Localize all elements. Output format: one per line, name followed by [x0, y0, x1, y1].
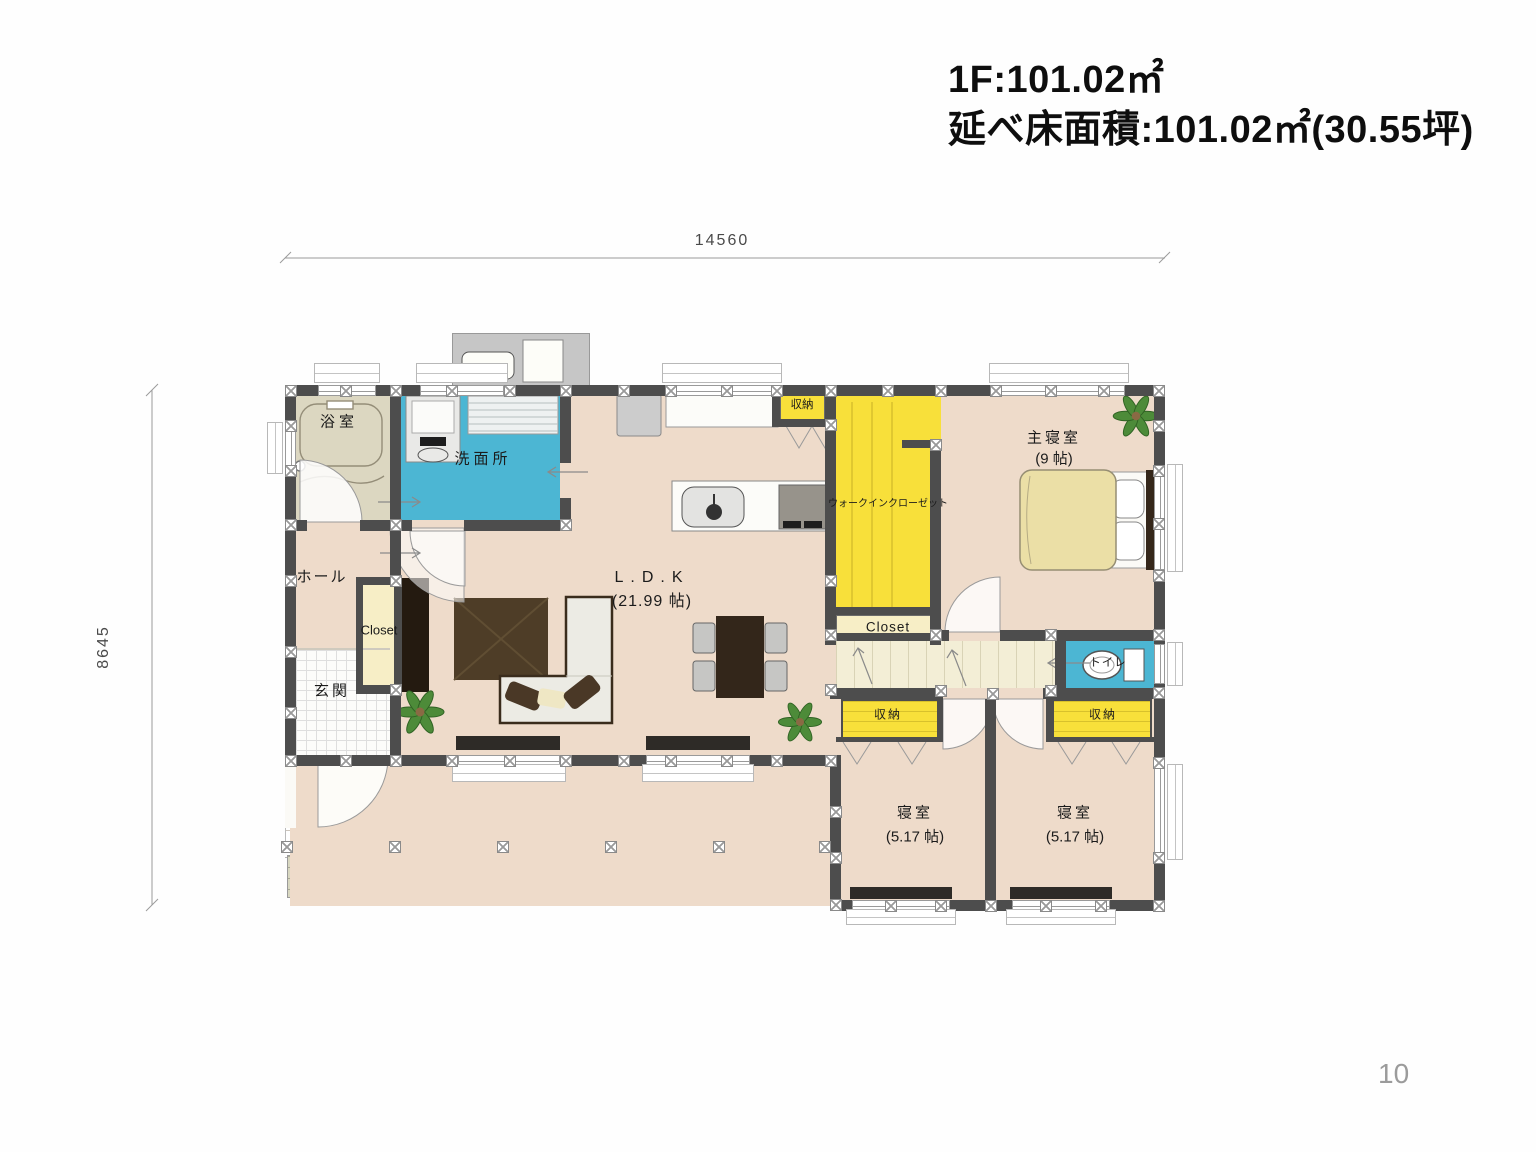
post-mark — [1040, 900, 1052, 912]
post-mark — [990, 385, 1002, 397]
post-mark — [340, 755, 352, 767]
post-mark — [1153, 757, 1165, 769]
post-mark — [390, 755, 402, 767]
window-lintel — [646, 736, 750, 750]
pillow — [1112, 522, 1144, 560]
post-mark — [497, 841, 509, 853]
wall-segment — [1043, 688, 1154, 699]
post-mark — [446, 755, 458, 767]
plant — [396, 689, 444, 736]
post-mark — [830, 852, 842, 864]
post-mark — [390, 575, 402, 587]
kitchen-storage-label: 収納 — [791, 396, 814, 412]
post-mark — [1098, 385, 1110, 397]
post-mark — [1045, 685, 1057, 697]
window-sill — [1167, 642, 1183, 686]
bedroom2-size: (5.17 帖) — [1046, 826, 1104, 847]
post-mark — [825, 385, 837, 397]
post-mark — [930, 439, 942, 451]
post-mark — [1153, 852, 1165, 864]
bedroom1-closet-fold-door — [843, 742, 926, 764]
bedroom2-door-arc — [993, 699, 1043, 749]
window-sill — [1167, 464, 1183, 572]
post-mark — [665, 755, 677, 767]
window-sill — [1167, 764, 1183, 860]
bedroom2-storage-label: 収納 — [1089, 706, 1117, 723]
window-sill — [267, 422, 283, 474]
hall-label: ホール — [296, 566, 347, 587]
post-mark — [605, 841, 617, 853]
post-mark — [285, 755, 297, 767]
wall-segment — [937, 699, 943, 742]
window — [1154, 766, 1165, 858]
post-mark — [935, 900, 947, 912]
post-mark — [446, 385, 458, 397]
post-mark — [985, 900, 997, 912]
wall-segment — [1046, 699, 1052, 742]
wall-segment — [360, 520, 412, 531]
washroom-shelf — [468, 396, 558, 434]
dining-chair — [765, 661, 787, 691]
post-mark — [285, 575, 297, 587]
dimension-line-width — [280, 252, 1170, 263]
wall-segment — [464, 520, 571, 531]
bed — [1020, 470, 1155, 570]
washroom-label: 洗面所 — [454, 448, 511, 469]
post-mark — [389, 841, 401, 853]
post-mark — [560, 755, 572, 767]
wall-segment — [1052, 737, 1154, 742]
post-mark — [713, 841, 725, 853]
toilet-label: トイレ — [1089, 654, 1127, 670]
master-bedroom-size: (9 帖) — [1035, 448, 1073, 469]
bedroom2-closet-fold-door — [1058, 742, 1140, 764]
dining-chair — [693, 623, 715, 653]
master-door-arc — [945, 577, 1000, 632]
dining-chair — [765, 623, 787, 653]
post-mark — [1045, 629, 1057, 641]
post-mark — [935, 685, 947, 697]
walk-in-closet-label: ウォークインクローゼット — [828, 495, 948, 510]
window-lintel — [456, 736, 560, 750]
wall-segment — [1055, 641, 1066, 688]
post-mark — [285, 646, 297, 658]
post-mark — [618, 755, 630, 767]
post-mark — [885, 900, 897, 912]
post-mark — [285, 465, 297, 477]
floorplan-page: 1F:101.02㎡ 延べ床面積:101.02㎡(30.55坪) — [0, 0, 1536, 1152]
dining-table — [716, 616, 764, 698]
window — [1154, 644, 1165, 684]
post-mark — [1153, 687, 1165, 699]
bath-label: 浴室 — [320, 411, 358, 432]
post-mark — [825, 575, 837, 587]
post-mark — [935, 385, 947, 397]
ldk-size-label: (21.99 帖) — [612, 587, 692, 611]
post-mark — [1153, 570, 1165, 582]
post-mark — [665, 385, 677, 397]
wall-segment — [390, 525, 401, 582]
window-sill — [989, 363, 1129, 383]
tv-board — [399, 578, 429, 692]
bedroom1-storage-label: 収納 — [874, 706, 902, 723]
rug — [454, 598, 548, 680]
post-mark — [830, 899, 842, 911]
post-mark — [285, 707, 297, 719]
height-dimension-label: 8645 — [95, 625, 113, 669]
post-mark — [1153, 465, 1165, 477]
post-mark — [504, 385, 516, 397]
post-mark — [721, 385, 733, 397]
post-mark — [340, 385, 352, 397]
wall-segment — [390, 385, 401, 525]
post-mark — [1153, 900, 1165, 912]
entrance-label: 玄関 — [314, 680, 350, 701]
wic-closet-label: Closet — [866, 620, 910, 635]
post-mark — [771, 385, 783, 397]
post-mark — [882, 385, 894, 397]
bedroom2-label: 寝室 — [1057, 802, 1093, 823]
master-bedroom-label: 主寝室 — [1027, 427, 1081, 448]
plant — [1113, 394, 1159, 438]
window-sill — [416, 363, 508, 383]
wall-segment — [830, 688, 943, 699]
post-mark — [1153, 420, 1165, 432]
post-mark — [825, 629, 837, 641]
window-lintel — [850, 887, 952, 899]
window-sill — [642, 764, 754, 782]
post-mark — [825, 684, 837, 696]
washing-machine — [406, 396, 460, 462]
post-mark — [285, 519, 297, 531]
symbols-layer — [0, 0, 1536, 1152]
wall-segment — [830, 755, 841, 911]
wall-segment — [836, 607, 941, 615]
post-mark — [1095, 900, 1107, 912]
post-mark — [830, 806, 842, 818]
post-mark — [721, 755, 733, 767]
post-mark — [504, 755, 516, 767]
post-mark — [819, 841, 831, 853]
post-mark — [1153, 629, 1165, 641]
blanket — [1020, 470, 1116, 570]
post-mark — [1153, 518, 1165, 530]
post-mark — [825, 419, 837, 431]
plant — [778, 701, 821, 743]
dimension-line-height — [146, 384, 158, 911]
kitchen-island — [672, 481, 830, 531]
window — [420, 385, 504, 396]
entrance-door-arc — [318, 757, 388, 827]
entrance-closet-label: Closet — [361, 623, 398, 638]
window-sill — [314, 363, 380, 383]
wall-segment — [985, 699, 996, 911]
post-mark — [1045, 385, 1057, 397]
ldk-label: L.D.K — [614, 569, 689, 587]
post-mark — [560, 519, 572, 531]
width-dimension-label: 14560 — [695, 232, 750, 250]
window-lintel — [1010, 887, 1112, 899]
wall-segment — [941, 630, 949, 641]
post-mark — [285, 420, 297, 432]
bedroom1-size: (5.17 帖) — [886, 826, 944, 847]
window-sill — [662, 363, 782, 383]
post-mark — [285, 385, 297, 397]
wall-segment — [1000, 630, 1154, 641]
dining-set — [693, 616, 787, 698]
post-mark — [390, 519, 402, 531]
refrigerator — [617, 394, 661, 436]
wall-segment — [836, 737, 942, 742]
post-mark — [1153, 385, 1165, 397]
post-mark — [825, 755, 837, 767]
post-mark — [390, 385, 402, 397]
post-mark — [618, 385, 630, 397]
dining-chair — [693, 661, 715, 691]
bath-door-arc — [300, 460, 362, 522]
post-mark — [560, 385, 572, 397]
post-mark — [930, 629, 942, 641]
bedroom1-label: 寝室 — [897, 802, 933, 823]
post-mark — [987, 688, 999, 700]
pillow — [1112, 480, 1144, 518]
post-mark — [390, 684, 402, 696]
post-mark — [771, 755, 783, 767]
floor-plan: 浴室 洗面所 ホール Closet 玄関 L.D.K (21.99 帖) 収納 … — [0, 0, 1536, 1152]
post-mark — [281, 841, 293, 853]
